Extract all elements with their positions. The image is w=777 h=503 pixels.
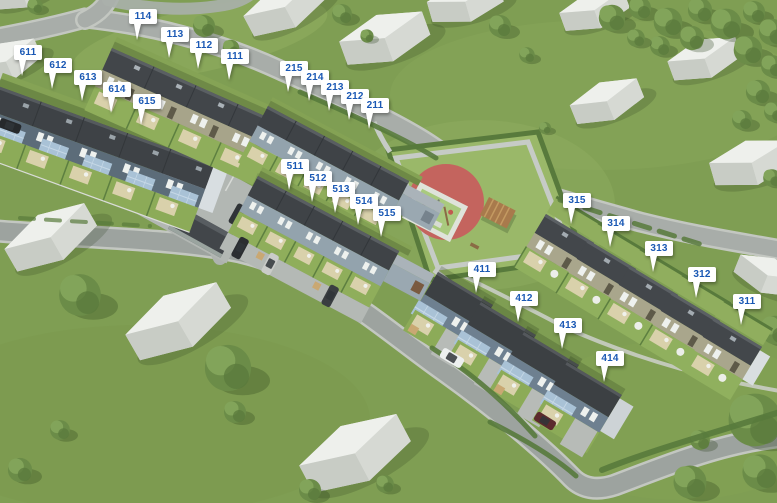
unit-number: 312 xyxy=(693,269,710,280)
unit-marker-413[interactable]: 413 xyxy=(554,318,582,333)
unit-number: 313 xyxy=(650,243,667,254)
unit-marker-414[interactable]: 414 xyxy=(596,351,624,366)
unit-marker-111[interactable]: 111 xyxy=(221,49,249,64)
unit-marker-411[interactable]: 411 xyxy=(468,262,496,277)
unit-number: 411 xyxy=(474,264,491,275)
unit-number: 513 xyxy=(332,184,349,195)
unit-number: 514 xyxy=(355,196,372,207)
unit-number: 314 xyxy=(607,218,624,229)
unit-number: 511 xyxy=(287,161,304,172)
unit-marker-313[interactable]: 313 xyxy=(645,241,673,256)
unit-number: 512 xyxy=(309,173,326,184)
unit-marker-412[interactable]: 412 xyxy=(510,291,538,306)
unit-marker-312[interactable]: 312 xyxy=(688,267,716,282)
unit-number: 515 xyxy=(378,208,395,219)
unit-marker-613[interactable]: 613 xyxy=(74,70,102,85)
unit-number: 615 xyxy=(138,96,155,107)
unit-marker-314[interactable]: 314 xyxy=(602,216,630,231)
unit-number: 211 xyxy=(367,100,384,111)
unit-number: 413 xyxy=(559,320,576,331)
unit-marker-615[interactable]: 615 xyxy=(133,94,161,109)
unit-number: 311 xyxy=(739,296,756,307)
unit-number: 414 xyxy=(601,353,618,364)
unit-number: 112 xyxy=(196,40,213,51)
site-plan: 611 612 613 614 615 114 113 112 111 215 … xyxy=(0,0,777,503)
unit-number: 611 xyxy=(20,47,37,58)
unit-number: 412 xyxy=(515,293,532,304)
unit-marker-311[interactable]: 311 xyxy=(733,294,761,309)
unit-number: 114 xyxy=(135,11,152,22)
unit-marker-612[interactable]: 612 xyxy=(44,58,72,73)
unit-marker-113[interactable]: 113 xyxy=(161,27,189,42)
unit-number: 613 xyxy=(79,72,96,83)
unit-marker-315[interactable]: 315 xyxy=(563,193,591,208)
unit-marker-211[interactable]: 211 xyxy=(361,98,389,113)
unit-number: 614 xyxy=(108,84,125,95)
unit-number: 111 xyxy=(227,51,243,62)
unit-marker-611[interactable]: 611 xyxy=(14,45,42,60)
unit-number: 612 xyxy=(49,60,66,71)
unit-number: 113 xyxy=(167,29,184,40)
unit-number: 315 xyxy=(568,195,585,206)
unit-marker-112[interactable]: 112 xyxy=(190,38,218,53)
unit-marker-114[interactable]: 114 xyxy=(129,9,157,24)
unit-marker-515[interactable]: 515 xyxy=(373,206,401,221)
unit-marker-614[interactable]: 614 xyxy=(103,82,131,97)
